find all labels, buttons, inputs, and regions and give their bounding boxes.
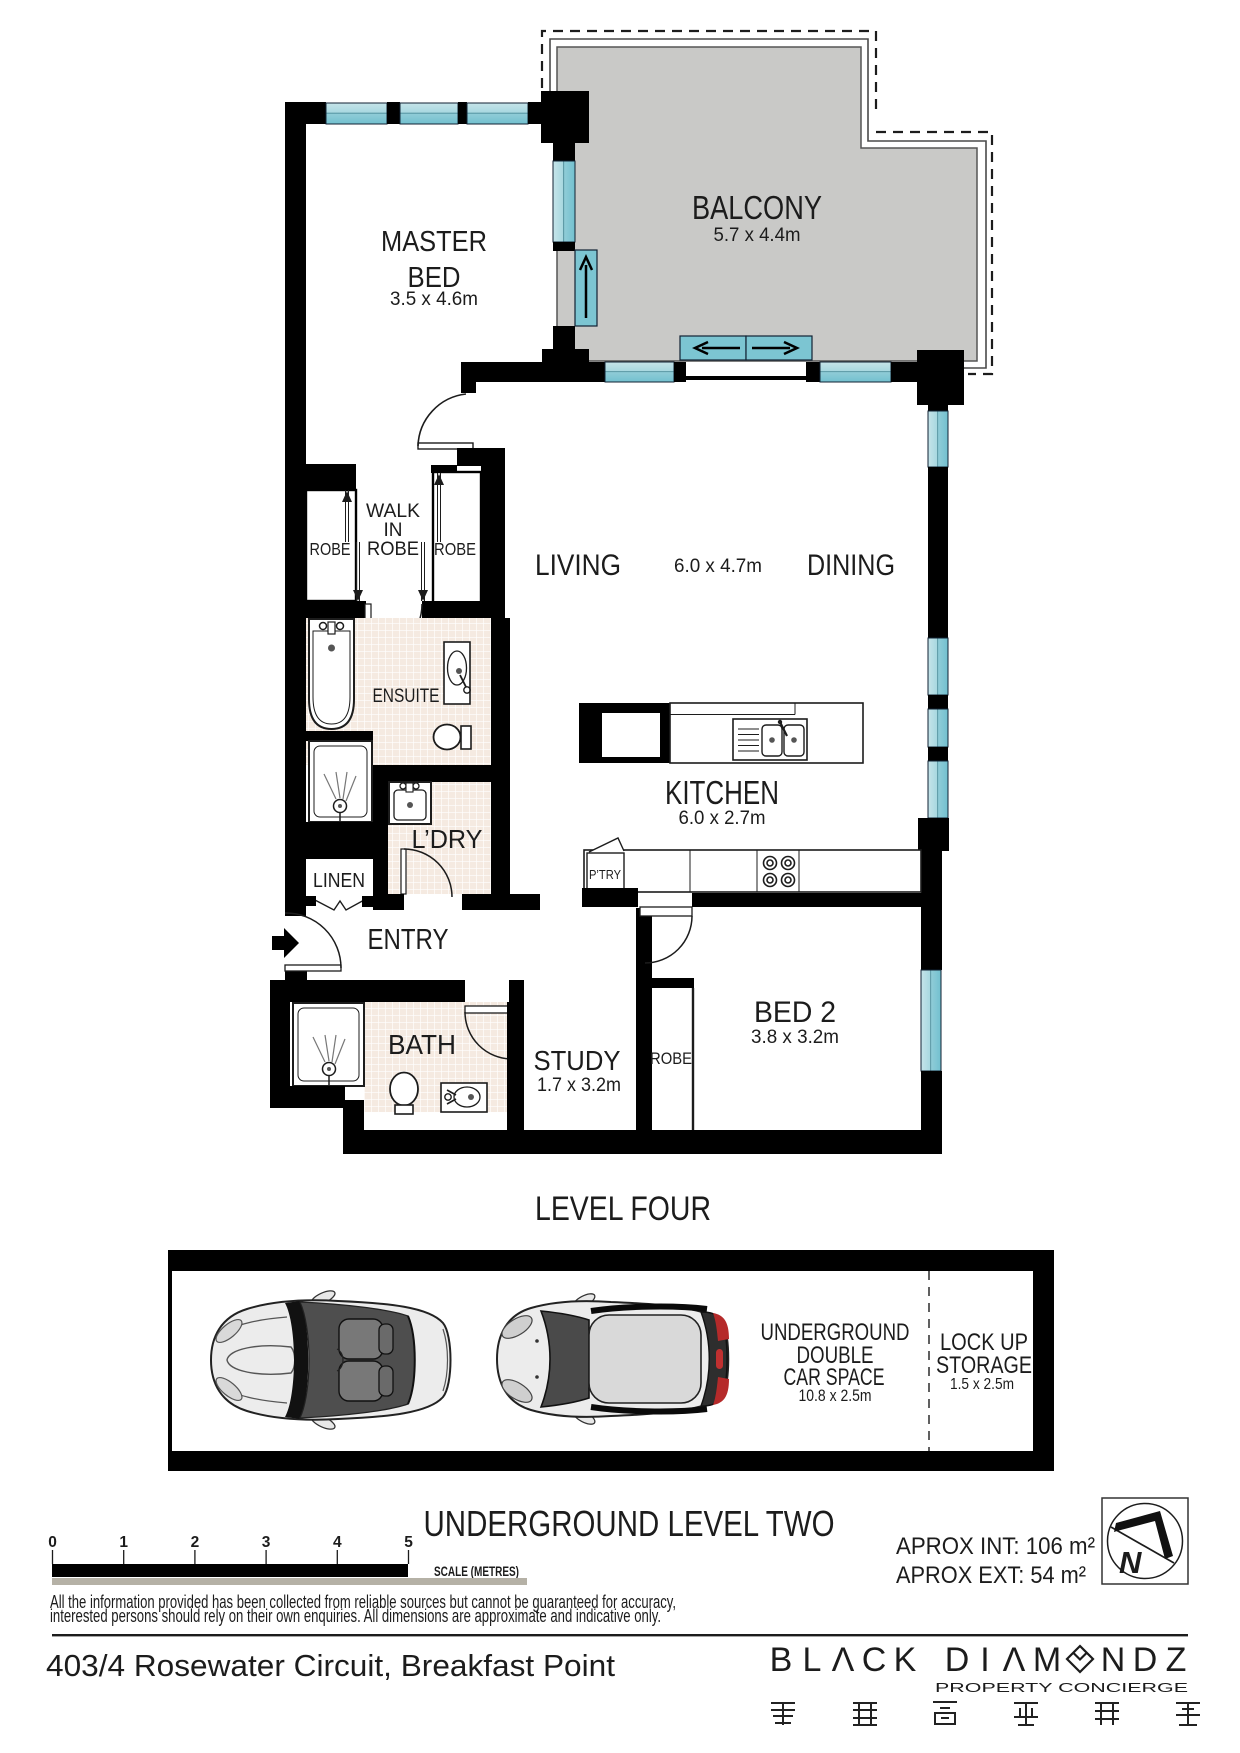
- svg-text:PROPERTY CONCIERGE: PROPERTY CONCIERGE: [935, 1680, 1189, 1695]
- svg-text:BED 2: BED 2: [754, 996, 836, 1029]
- svg-text:APROX EXT: 54 m²: APROX EXT: 54 m²: [896, 1562, 1086, 1589]
- svg-text:6.0 x 2.7m: 6.0 x 2.7m: [679, 808, 766, 829]
- svg-text:STUDY: STUDY: [534, 1045, 621, 1076]
- svg-text:3.8 x 3.2m: 3.8 x 3.2m: [751, 1027, 839, 1048]
- svg-text:L: L: [803, 1641, 822, 1679]
- svg-text:ROBE: ROBE: [650, 1050, 692, 1068]
- svg-text:M: M: [1033, 1641, 1061, 1679]
- svg-text:IN: IN: [384, 520, 403, 541]
- svg-text:1.5 x 2.5m: 1.5 x 2.5m: [950, 1376, 1014, 1393]
- svg-text:BATH: BATH: [388, 1029, 456, 1060]
- svg-text:D: D: [1133, 1641, 1158, 1679]
- svg-text:P’TRY: P’TRY: [589, 868, 622, 882]
- svg-text:UNDERGROUND LEVEL TWO: UNDERGROUND LEVEL TWO: [424, 1503, 835, 1544]
- svg-text:0: 0: [48, 1534, 57, 1551]
- svg-text:BALCONY: BALCONY: [692, 189, 822, 226]
- svg-text:L’DRY: L’DRY: [412, 824, 483, 854]
- svg-text:D: D: [945, 1641, 970, 1679]
- svg-text:MASTER: MASTER: [381, 226, 487, 258]
- svg-text:5.7 x 4.4m: 5.7 x 4.4m: [714, 225, 801, 246]
- svg-text:C: C: [862, 1641, 887, 1679]
- svg-text:B: B: [770, 1641, 793, 1679]
- svg-text:SCALE (METRES): SCALE (METRES): [434, 1564, 519, 1579]
- svg-text:KITCHEN: KITCHEN: [665, 774, 779, 811]
- svg-text:DINING: DINING: [807, 549, 895, 582]
- svg-text:interested persons should rely: interested persons should rely on their …: [50, 1606, 661, 1626]
- svg-text:ROBE: ROBE: [367, 539, 419, 560]
- svg-text:3.5 x 4.6m: 3.5 x 4.6m: [390, 289, 478, 310]
- svg-text:K: K: [894, 1641, 917, 1679]
- svg-text:10.8 x 2.5m: 10.8 x 2.5m: [799, 1387, 872, 1405]
- svg-text:ROBE: ROBE: [310, 539, 351, 559]
- svg-text:5: 5: [404, 1534, 413, 1551]
- svg-text:ENTRY: ENTRY: [368, 924, 449, 956]
- svg-text:ENSUITE: ENSUITE: [373, 686, 440, 707]
- svg-text:APROX INT: 106 m²: APROX INT: 106 m²: [896, 1533, 1095, 1560]
- svg-text:N: N: [1101, 1641, 1126, 1679]
- svg-text:4: 4: [333, 1534, 342, 1551]
- svg-text:WALK: WALK: [366, 501, 420, 522]
- svg-text:Λ: Λ: [1003, 1641, 1026, 1679]
- svg-text:I: I: [980, 1641, 989, 1679]
- svg-text:Z: Z: [1166, 1641, 1187, 1679]
- svg-text:1.7 x 3.2m: 1.7 x 3.2m: [537, 1075, 621, 1096]
- svg-text:LIVING: LIVING: [535, 549, 621, 582]
- svg-text:N: N: [1119, 1545, 1142, 1580]
- svg-text:STORAGE: STORAGE: [936, 1352, 1032, 1379]
- svg-text:2: 2: [191, 1534, 200, 1551]
- svg-text:6.0 x 4.7m: 6.0 x 4.7m: [674, 556, 762, 577]
- svg-text:LINEN: LINEN: [313, 870, 365, 892]
- svg-text:Λ: Λ: [832, 1641, 855, 1679]
- svg-text:ROBE: ROBE: [434, 539, 476, 559]
- svg-text:1: 1: [119, 1534, 128, 1551]
- svg-text:LEVEL FOUR: LEVEL FOUR: [535, 1190, 711, 1228]
- svg-text:403/4 Rosewater Circuit, Break: 403/4 Rosewater Circuit, Breakfast Point: [46, 1648, 615, 1683]
- svg-text:3: 3: [262, 1534, 271, 1551]
